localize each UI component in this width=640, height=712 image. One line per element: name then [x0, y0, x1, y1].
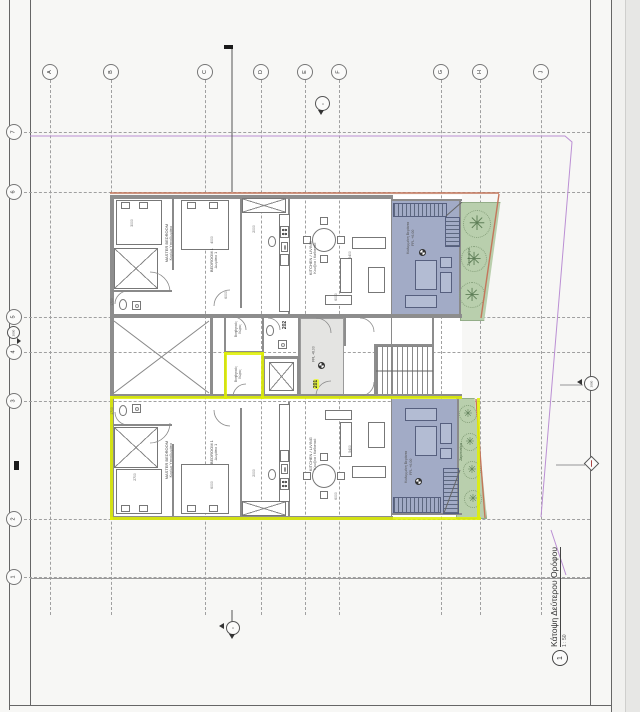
room-label-veranda-upper: Καλυμμένη Βεράντα FFL +6.00 [406, 208, 416, 268]
unit-201-outline [224, 352, 264, 355]
sofa [325, 295, 352, 305]
pillow [209, 202, 218, 209]
pillow [121, 202, 130, 209]
wardrobe [114, 427, 158, 468]
veranda-stair-upper [393, 203, 447, 217]
room-label-master-upper: MASTER BEDROOM Κυρίως Υπνοδωμάτιο [164, 213, 174, 273]
closet [242, 501, 286, 516]
washing-machine [278, 340, 287, 349]
toilet [119, 405, 127, 416]
dimension-text: 6000 [334, 492, 338, 500]
wall-segment [432, 318, 434, 396]
wall-segment [240, 408, 242, 516]
washing-machine [132, 404, 141, 413]
outdoor-table [415, 426, 437, 456]
grid-row-bubble: 1 [6, 569, 22, 585]
outdoor-chair [440, 272, 452, 293]
section-marker-top-icon: ≡ [315, 96, 330, 111]
elevator-wall [297, 356, 300, 395]
section-flag [224, 45, 233, 49]
chair [337, 236, 345, 244]
dimension-text: 4000 [210, 236, 214, 244]
toilet [268, 236, 276, 247]
grid-row-line [19, 192, 590, 193]
outdoor-sofa [405, 408, 437, 421]
grid-column-bubble: F [331, 64, 347, 80]
outdoor-sofa [405, 295, 437, 308]
grid-column-line [480, 80, 481, 615]
stove [280, 226, 289, 238]
room-label-veranda-lower: Καλυμμένη Βεράντα FFL +6.00 [404, 437, 414, 497]
wall-segment [391, 199, 462, 201]
chair [320, 491, 328, 499]
frame-inner-bottom-line [30, 578, 590, 579]
dimension-text: 6000 [210, 481, 214, 489]
veranda-steps-upper [445, 217, 460, 247]
chair [337, 472, 345, 480]
room-label-living-lower: Kitchen / Living Κουζίνα / Καθιστικό [308, 424, 318, 484]
veranda-steps-lower [443, 468, 459, 514]
grid-column-bubble: H [472, 64, 488, 80]
grid-row-line [19, 401, 590, 402]
pillow [209, 505, 218, 512]
toilet [266, 325, 274, 336]
toilet [119, 299, 127, 310]
elevator-car [269, 362, 294, 391]
garden-label-upper: Ζαρντινιέρα [467, 248, 471, 266]
stove [280, 478, 289, 490]
grid-row-bubble: 2 [6, 511, 22, 527]
sofa [368, 422, 385, 448]
arrow-down-icon [229, 634, 235, 639]
dimension-text: 2000 [252, 225, 256, 233]
wall-segment [112, 290, 172, 292]
lobby-level-text: FFL +6.00 [312, 346, 316, 361]
unit-201-outline [110, 517, 481, 520]
tree-icon: ✳ [463, 210, 491, 238]
outdoor-chair [440, 257, 452, 268]
unit-number-201: 201 [313, 379, 319, 389]
sofa [352, 237, 386, 249]
grid-row-line [19, 132, 590, 133]
level-marker-icon [318, 362, 325, 369]
chair [320, 255, 328, 263]
sofa [368, 267, 385, 293]
level-marker-icon [419, 249, 426, 256]
wall-segment [240, 198, 242, 308]
grid-column-line [205, 80, 206, 615]
tree-icon: ✳ [461, 246, 487, 272]
outdoor-chair [440, 423, 452, 444]
section-tick-left [14, 461, 19, 470]
dimension-text: 2700 [133, 473, 137, 481]
wall-segment [210, 318, 213, 394]
section-marker-bottom: ≡ [226, 621, 240, 635]
main-staircase [376, 346, 433, 395]
grid-column-bubble: D [253, 64, 269, 80]
tree-icon: ✳ [459, 282, 485, 308]
grid-row-bubble: 3 [6, 393, 22, 409]
pillow [139, 505, 148, 512]
pillow [187, 202, 196, 209]
arrow-down-icon [318, 110, 324, 115]
chair [320, 217, 328, 225]
level-marker-icon [415, 478, 422, 485]
closet [242, 198, 286, 213]
unit-number-202: 202 [282, 321, 288, 329]
pillow [139, 202, 148, 209]
wall-segment [112, 424, 172, 426]
view-number-bubble: 1 [552, 650, 568, 666]
pillow [121, 505, 130, 512]
dimension-text: 6000 [224, 291, 228, 299]
tree-icon: ✳ [459, 405, 477, 423]
room-label-bedroom-lower: BEDROOM 1 Δωμάτιο 1 [209, 422, 219, 482]
dimension-text: 1700 [110, 298, 114, 306]
arrow-left-icon [577, 379, 582, 385]
lobby [300, 318, 344, 396]
view-title-text: Κάτοψη Δεύτερου Ορόφου [549, 547, 561, 647]
grid-row-bubble: 4 [6, 344, 22, 360]
garden-label-lower: Ζαρντινιέρα [459, 443, 463, 461]
oven [280, 254, 289, 266]
arrow-left-icon [219, 623, 224, 629]
service-room-label-upper: Βοηθητικός Χώρος [234, 321, 242, 337]
dimension-text: 1700 [110, 407, 114, 415]
grid-row-bubble: 6 [6, 184, 22, 200]
grid-column-bubble: G [433, 64, 449, 80]
dimension-text: 6000 [334, 293, 338, 301]
unit-201-outline [261, 352, 264, 399]
outdoor-chair [440, 448, 452, 459]
sofa [340, 258, 352, 293]
grid-column-line [541, 80, 542, 615]
kitchen-sink [281, 242, 288, 252]
wall-segment [374, 344, 434, 346]
dimension-text: 2000 [252, 469, 256, 477]
sofa [352, 466, 386, 478]
dimension-text: 5400 [348, 251, 352, 259]
grid-row-bubble: 7 [6, 124, 22, 140]
wardrobe [114, 248, 158, 289]
grid-column-bubble: E [297, 64, 313, 80]
oven [280, 450, 289, 462]
wall-segment [110, 314, 462, 318]
grid-column-bubble: C [197, 64, 213, 80]
stair-corridor [346, 318, 432, 344]
view-scale-text: 1 : 50 [561, 547, 568, 647]
pillow [187, 505, 196, 512]
washing-machine [132, 301, 141, 310]
elevator-wall [262, 356, 300, 359]
arrow-right-icon [17, 338, 21, 344]
unit-201-outline [477, 398, 480, 520]
grid-column-bubble: A [42, 64, 58, 80]
grid-column-line [50, 80, 51, 615]
dimension-text: 5400 [348, 445, 352, 453]
wall-segment [374, 344, 376, 395]
unit-201-outline [110, 396, 462, 399]
grid-column-bubble: B [103, 64, 119, 80]
grid-row-bubble: 5 [6, 309, 22, 325]
outdoor-table [415, 260, 437, 290]
wall-glass-line [391, 199, 392, 516]
kitchen-sink [281, 464, 288, 474]
sofa [325, 410, 352, 420]
room-label-living-upper: Kitchen / Living Κουζίνα / Καθιστικό [308, 228, 318, 288]
chair [320, 453, 328, 461]
room-label-master-lower: MASTER BEDROOM Κυρίως Υπνοδωμάτιο [164, 430, 174, 490]
grid-column-bubble: J [533, 64, 549, 80]
view-title: 1 Κάτοψη Δεύτερου Ορόφου 1 : 50 [549, 534, 568, 666]
toilet [268, 469, 276, 480]
unit-201-outline [224, 352, 227, 399]
wall-segment [344, 318, 346, 346]
dimension-text: 3000 [130, 219, 134, 227]
grid-column-line [441, 80, 442, 615]
service-room-label-lower: Βοηθητικός Χώρος [234, 366, 242, 382]
elevation-marker-right: 2000 [584, 376, 599, 391]
veranda-stair-lower [393, 497, 441, 513]
